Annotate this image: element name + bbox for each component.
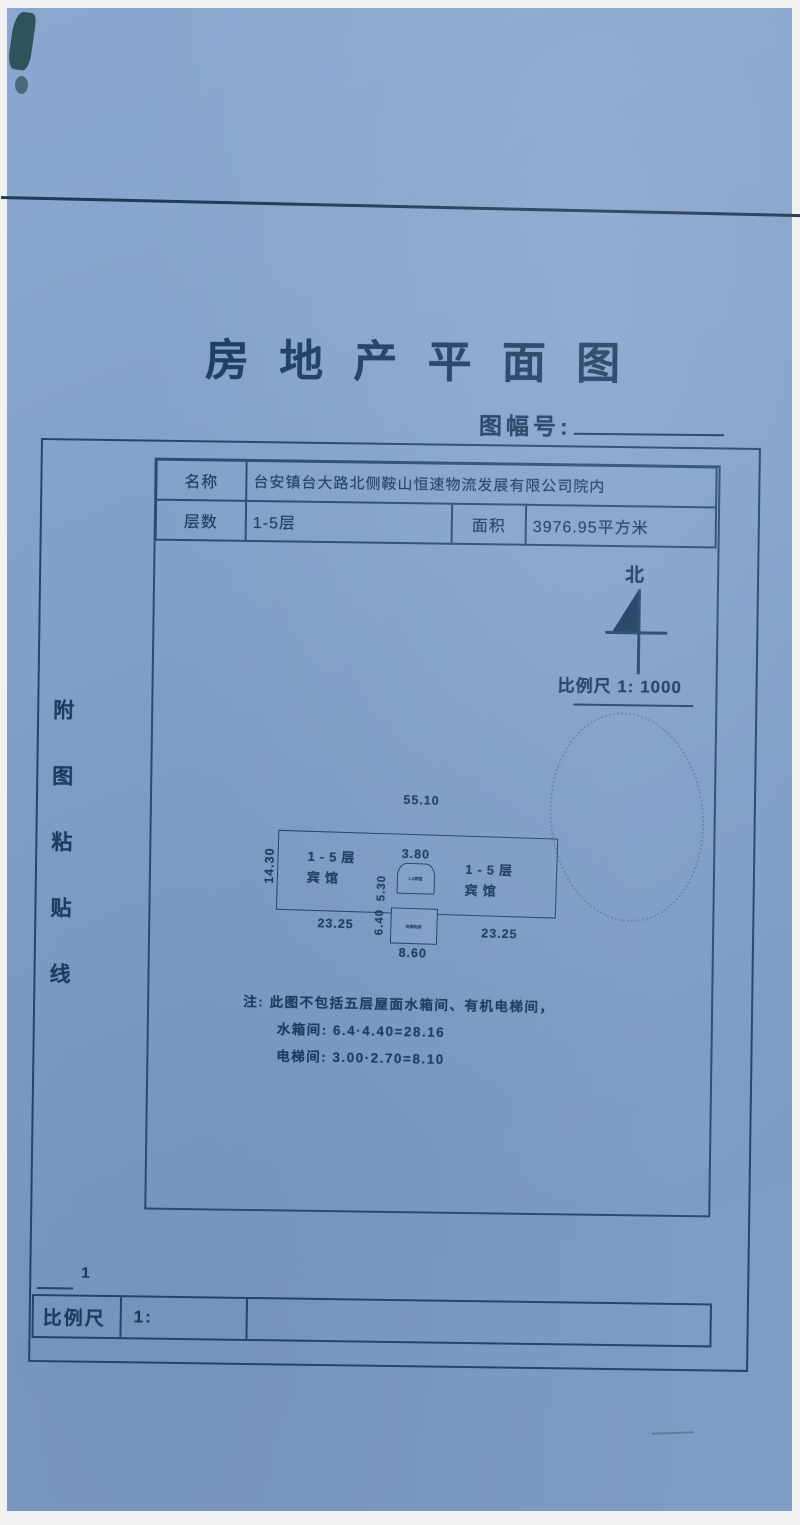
map-scale-underline: [573, 703, 693, 707]
bottom-scale-value-cell: 1:: [121, 1297, 248, 1339]
sheet-number-blank: [574, 413, 724, 437]
left-wing-label: 1-5层 宾馆: [307, 846, 360, 890]
outer-frame: 附 图 粘 贴 线 名称 台安镇台大路北侧鞍山恒速物流发展有限公司院内 层数 1…: [28, 438, 761, 1372]
bottom-scale-label: 比例尺: [34, 1302, 106, 1330]
scan-smudge: [15, 76, 28, 94]
mid-entrance-block: 1-5宾馆: [396, 863, 435, 895]
paste-line-label: 粘: [51, 826, 72, 856]
scan-smudge: [7, 11, 37, 71]
right-wing-use: 宾馆: [464, 880, 516, 903]
stray-pen-mark: [652, 1431, 694, 1434]
drawing-area-box: 名称 台安镇台大路北侧鞍山恒速物流发展有限公司院内 层数 1-5层 面积 397…: [144, 458, 720, 1218]
floors-label: 层数: [156, 500, 247, 541]
dim-mid-height-lower: 6.40: [373, 909, 386, 936]
bottom-scale-bar: 比例尺 1:: [31, 1294, 712, 1347]
mid-rear-block: 电梯机房: [390, 907, 438, 944]
area-value: 3976.95平方米: [526, 505, 717, 548]
north-label: 北: [625, 560, 644, 587]
right-wing-floors: 1-5层: [465, 859, 517, 882]
sheet-number-field: 图幅号:: [479, 407, 724, 444]
north-arrow: 北: [594, 566, 686, 682]
dim-left-wing: 23.25: [317, 916, 354, 931]
mid-upper-label: 1-5宾馆: [409, 876, 423, 882]
scale-fraction-line: [37, 1287, 73, 1290]
paste-line-label: 图: [52, 760, 73, 790]
name-label: 名称: [156, 460, 247, 501]
note-line: 电梯间: 3.00·2.70=8.10: [276, 1043, 554, 1075]
mid-lower-label: 电梯机房: [406, 923, 422, 929]
sheet-number-label: 图幅号:: [479, 413, 572, 440]
dim-total-height: 14.30: [262, 847, 277, 884]
scanned-photo: 房 地 产 平 面 图 图幅号: 附 图 粘 贴 线 名称 台安镇台大路北侧鞍山…: [0, 0, 800, 1525]
floor-plan: 55.10 14.30 1-5层 宾馆 1-5层 宾馆 3.80 1-5宾馆: [270, 787, 576, 976]
blueprint-paper: 房 地 产 平 面 图 图幅号: 附 图 粘 贴 线 名称 台安镇台大路北侧鞍山…: [7, 8, 792, 1511]
page-title: 房 地 产 平 面 图: [205, 324, 626, 392]
area-label: 面积: [452, 504, 527, 545]
dim-mid-bottom: 8.60: [398, 946, 427, 961]
floors-value: 1-5层: [246, 501, 453, 544]
notes-block: 注: 此图不包括五层屋面水箱间、有机电梯间， 水箱间: 6.4·4.40=28.…: [242, 988, 555, 1075]
paper-edge-line: [1, 196, 800, 218]
table-row: 层数 1-5层 面积 3976.95平方米: [156, 500, 717, 548]
north-arrow-crossbar: [605, 631, 667, 634]
paste-line-label: 线: [49, 958, 70, 988]
north-arrow-icon: [611, 589, 639, 633]
bottom-scale-empty-cell: [247, 1299, 710, 1345]
paste-line-label: 附: [53, 694, 74, 724]
property-info-table: 名称 台安镇台大路北侧鞍山恒速物流发展有限公司院内 层数 1-5层 面积 397…: [155, 459, 718, 549]
map-scale-text: 比例尺 1: 1000: [557, 671, 682, 698]
bottom-scale-label-cell: 比例尺: [33, 1296, 122, 1337]
left-wing-floors: 1-5层: [307, 846, 359, 869]
paste-line-label: 贴: [50, 892, 71, 922]
dim-total-width: 55.10: [403, 793, 440, 808]
bottom-scale-value: 1:: [122, 1307, 153, 1327]
right-wing-label: 1-5层 宾馆: [464, 859, 517, 903]
dim-right-wing: 23.25: [481, 926, 518, 941]
name-value: 台安镇台大路北侧鞍山恒速物流发展有限公司院内: [246, 461, 717, 508]
dim-mid-height-upper: 5.30: [375, 875, 388, 902]
left-wing-use: 宾馆: [307, 867, 359, 890]
dim-mid-width: 3.80: [401, 847, 430, 862]
scale-fraction-numerator: 1: [81, 1265, 90, 1282]
